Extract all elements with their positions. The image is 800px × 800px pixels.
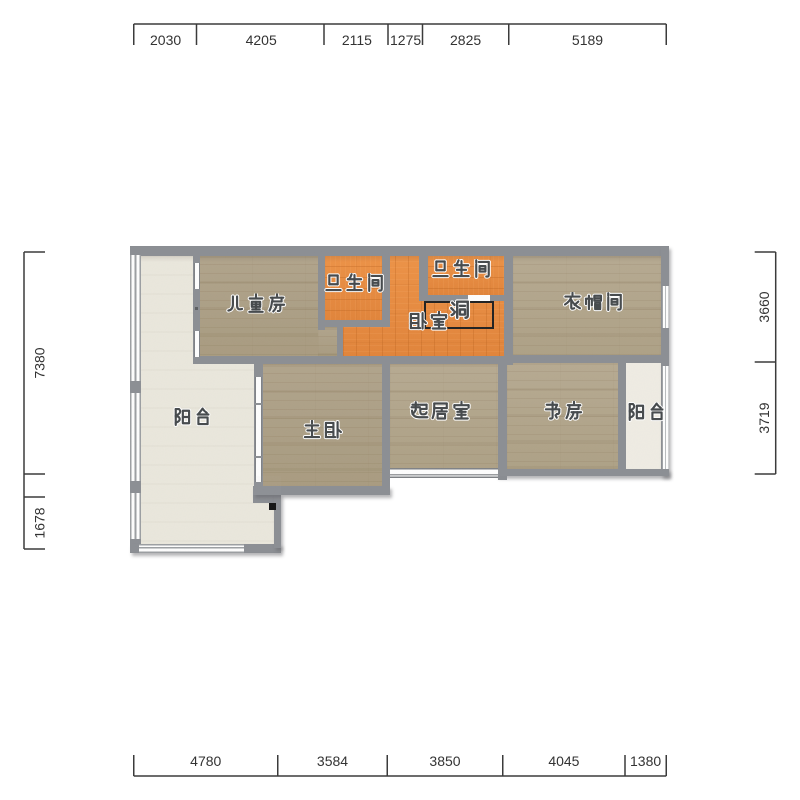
svg-text:2825: 2825: [450, 32, 481, 48]
svg-text:5189: 5189: [572, 32, 603, 48]
svg-text:2030: 2030: [150, 32, 181, 48]
svg-text:3719: 3719: [756, 402, 772, 433]
svg-text:3660: 3660: [756, 291, 772, 322]
svg-text:4205: 4205: [246, 32, 277, 48]
svg-text:7380: 7380: [32, 347, 48, 378]
svg-text:3584: 3584: [317, 753, 348, 769]
svg-text:1380: 1380: [630, 753, 661, 769]
svg-text:2115: 2115: [342, 32, 372, 48]
svg-text:1275: 1275: [390, 32, 421, 48]
svg-text:3850: 3850: [429, 753, 460, 769]
svg-text:1678: 1678: [32, 507, 48, 538]
svg-text:4780: 4780: [190, 753, 221, 769]
svg-text:4045: 4045: [548, 753, 579, 769]
